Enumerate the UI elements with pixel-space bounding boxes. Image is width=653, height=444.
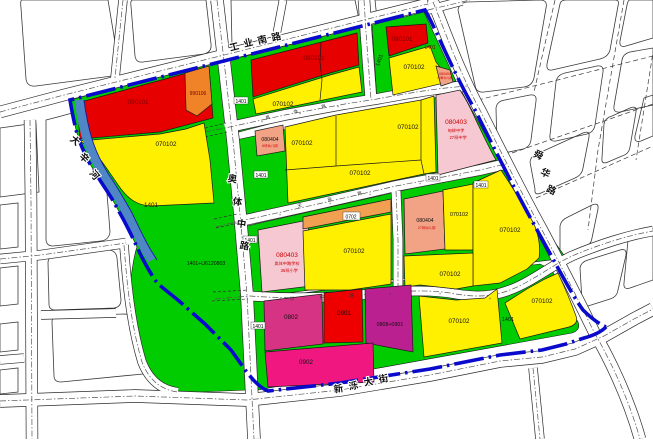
svg-text:1401: 1401 — [144, 202, 159, 209]
svg-text:080403: 080403 — [276, 252, 298, 259]
svg-text:1401: 1401 — [427, 176, 438, 182]
svg-text:0802: 0802 — [284, 314, 299, 321]
svg-text:1401+U6120803: 1401+U6120803 — [187, 261, 226, 267]
svg-text:6: 6 — [262, 144, 264, 148]
svg-text:1401: 1401 — [255, 173, 266, 179]
svg-text:090101: 090101 — [127, 99, 149, 106]
svg-text:070102: 070102 — [397, 124, 419, 131]
svg-text:27: 27 — [418, 226, 422, 230]
svg-text:070102: 070102 — [450, 212, 468, 218]
svg-text:080403: 080403 — [445, 119, 467, 126]
svg-text:070102: 070102 — [499, 227, 521, 234]
svg-text:0702: 0702 — [345, 215, 356, 221]
svg-text:1401: 1401 — [475, 183, 486, 189]
svg-text:080404: 080404 — [261, 137, 278, 143]
svg-text:070102: 070102 — [531, 298, 553, 305]
svg-text:0901: 0901 — [337, 310, 352, 317]
svg-text:36: 36 — [281, 268, 286, 273]
svg-text:070102: 070102 — [343, 248, 365, 255]
svg-text:080404: 080404 — [416, 218, 433, 224]
svg-text:0808+0901: 0808+0901 — [377, 322, 404, 328]
svg-text:090101: 090101 — [303, 55, 325, 62]
svg-text:070102: 070102 — [403, 64, 425, 71]
svg-text:1401: 1401 — [424, 45, 435, 51]
svg-text:070102: 070102 — [291, 140, 313, 147]
svg-text:1401: 1401 — [502, 317, 514, 323]
svg-text:1401: 1401 — [252, 324, 263, 330]
svg-text:1401: 1401 — [235, 99, 246, 105]
svg-text:990106: 990106 — [190, 91, 207, 97]
svg-text:070102: 070102 — [272, 101, 294, 108]
svg-text:070102: 070102 — [448, 318, 470, 325]
svg-text:0902: 0902 — [299, 359, 314, 366]
svg-text:070102: 070102 — [439, 271, 461, 278]
svg-text:070102: 070102 — [349, 170, 371, 177]
svg-text:27: 27 — [449, 135, 454, 140]
svg-text:070102: 070102 — [155, 141, 177, 148]
svg-text:080404: 080404 — [439, 72, 451, 76]
svg-text:090101: 090101 — [391, 36, 413, 43]
